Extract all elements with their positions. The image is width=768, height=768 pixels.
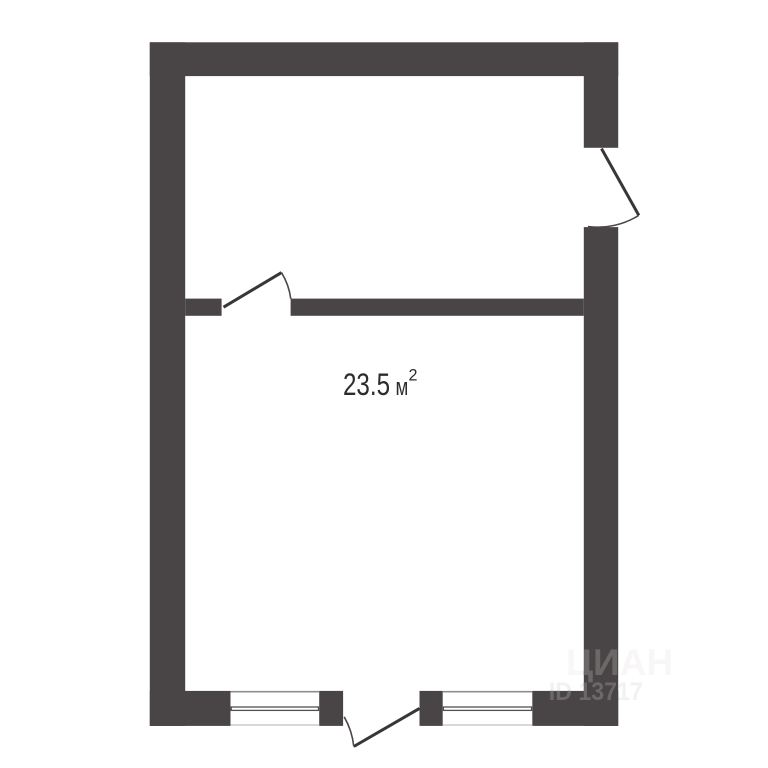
svg-text:м: м [396, 374, 409, 401]
svg-text:23.5: 23.5 [343, 366, 390, 402]
svg-text:2: 2 [409, 367, 418, 385]
svg-text:ЦИАН: ЦИАН [566, 642, 673, 683]
